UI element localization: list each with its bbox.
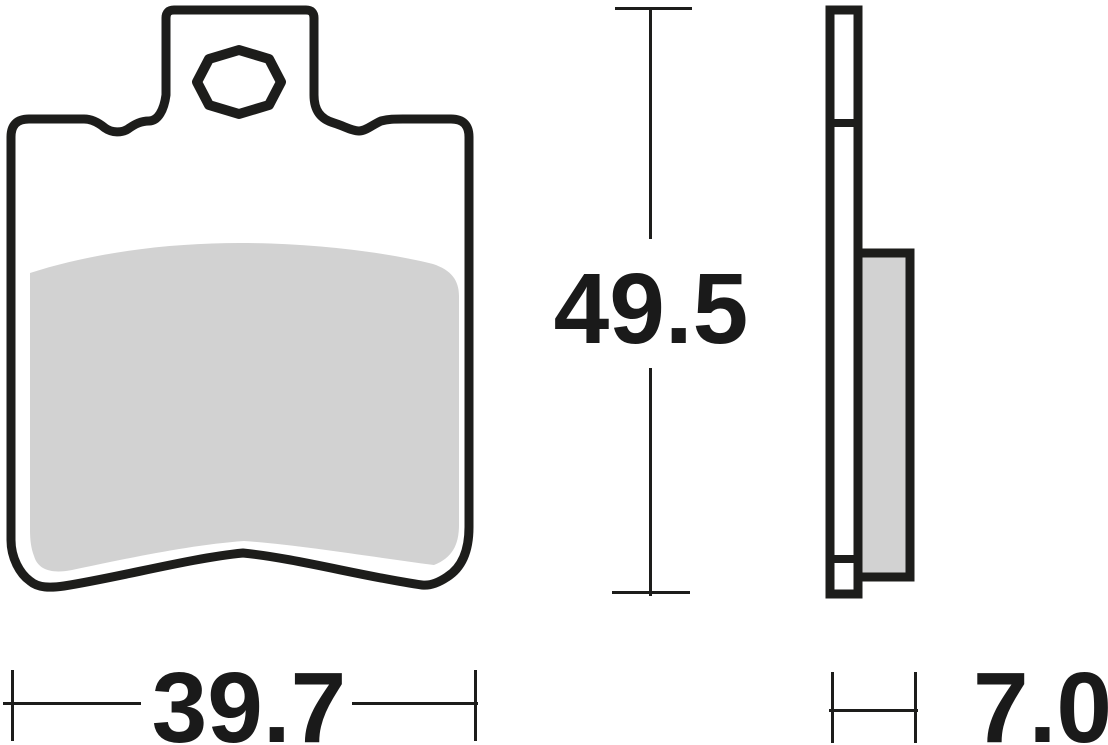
friction-material-front (30, 243, 459, 571)
technical-drawing-canvas: 49.5 39.7 7.0 (0, 0, 1108, 745)
width-dimension: 39.7 (3, 652, 478, 745)
side-view (830, 10, 910, 594)
front-view (11, 10, 469, 587)
width-dim-label: 39.7 (152, 652, 347, 745)
height-dimension: 49.5 (554, 7, 749, 596)
thickness-dim-label: 7.0 (973, 652, 1108, 745)
thickness-dimension: 7.0 (829, 652, 1108, 745)
friction-material-side (858, 253, 910, 577)
height-dim-label: 49.5 (554, 253, 749, 365)
mounting-hole (197, 50, 281, 114)
